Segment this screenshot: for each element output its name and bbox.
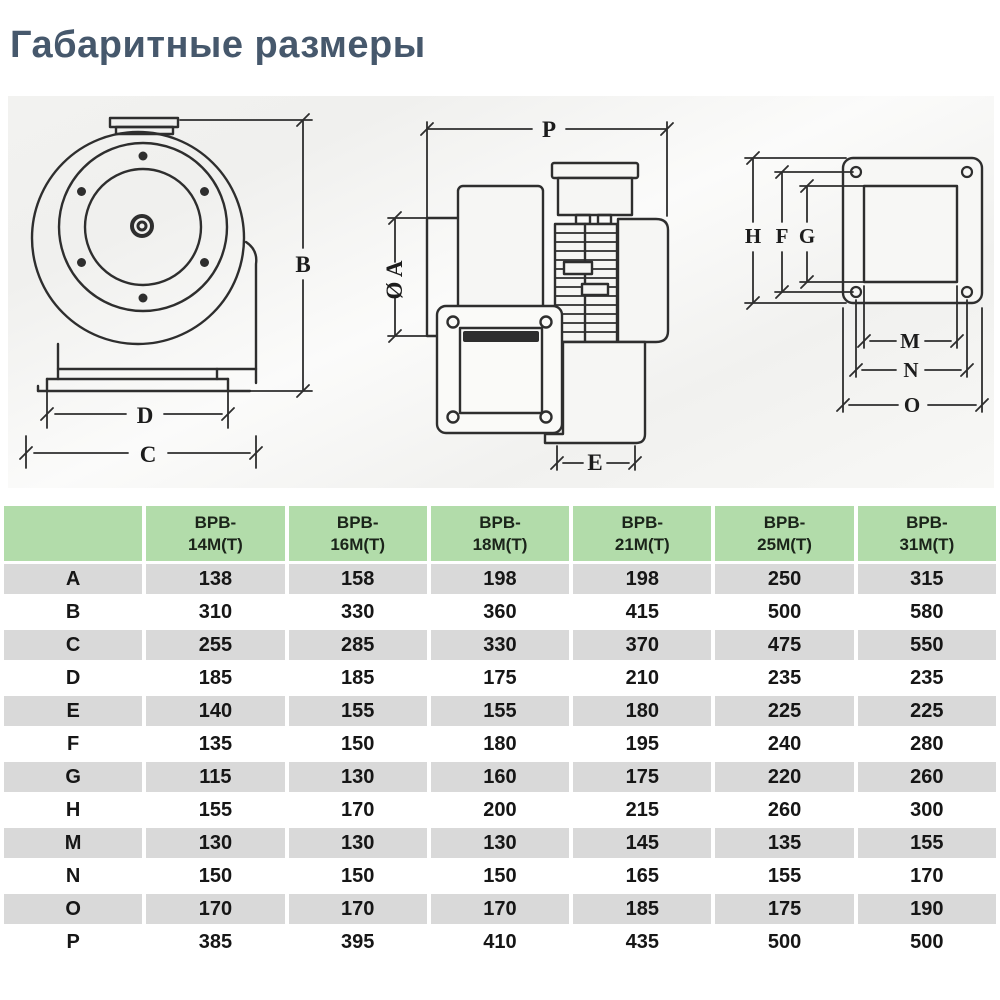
column-header-line2: 25M(T) — [715, 534, 853, 555]
outlet-slot — [463, 331, 539, 342]
dim-label-m: M — [900, 329, 920, 353]
dim-label-e: E — [587, 450, 602, 475]
dimension-value: 135 — [715, 828, 853, 858]
dimension-value: 130 — [289, 762, 427, 792]
row-label: E — [4, 696, 142, 726]
row-label: M — [4, 828, 142, 858]
dimension-value: 170 — [431, 894, 569, 924]
column-header-line1: BPB- — [858, 512, 996, 533]
fan-side-outline — [427, 163, 668, 443]
table-row-D: D185185175210235235 — [4, 663, 996, 693]
dimension-value: 195 — [573, 729, 711, 759]
dimension-value: 200 — [431, 795, 569, 825]
dim-label-d: D — [137, 403, 154, 428]
dimension-value: 185 — [289, 663, 427, 693]
dimension-value: 150 — [289, 729, 427, 759]
dimension-value: 310 — [146, 597, 284, 627]
dimension-value: 158 — [289, 564, 427, 594]
dimensions-table: BPB-14M(T)BPB-16M(T)BPB-18M(T)BPB-21M(T)… — [0, 503, 1000, 960]
flange-mounting-drawing: H F G M N O — [700, 110, 1000, 465]
row-label: H — [4, 795, 142, 825]
dimension-value: 500 — [858, 927, 996, 957]
column-header-line2: 21M(T) — [573, 534, 711, 555]
row-label: P — [4, 927, 142, 957]
table-row-H: H155170200215260300 — [4, 795, 996, 825]
table-row-B: B310330360415500580 — [4, 597, 996, 627]
dimension-value: 155 — [431, 696, 569, 726]
dimension-value: 235 — [715, 663, 853, 693]
hub-center — [138, 222, 146, 230]
motor-terminal-box — [552, 163, 638, 224]
dimension-value: 215 — [573, 795, 711, 825]
dimension-value: 260 — [715, 795, 853, 825]
dimension-value: 250 — [715, 564, 853, 594]
dim-label-g: G — [799, 224, 815, 248]
row-label: F — [4, 729, 142, 759]
dimension-value: 180 — [573, 696, 711, 726]
page-title: Габаритные размеры — [10, 24, 426, 67]
dimension-value: 500 — [715, 927, 853, 957]
dimension-value: 220 — [715, 762, 853, 792]
row-label: D — [4, 663, 142, 693]
column-header-line1: BPB- — [289, 512, 427, 533]
fan-front-view-drawing: B D C — [10, 96, 340, 486]
dimension-value: 150 — [431, 861, 569, 891]
dimension-value: 225 — [715, 696, 853, 726]
dimension-value: 180 — [431, 729, 569, 759]
dimension-value: 175 — [573, 762, 711, 792]
column-header-14M(T): BPB-14M(T) — [146, 506, 284, 561]
dimension-value: 115 — [146, 762, 284, 792]
table-corner-cell — [4, 506, 142, 561]
dimension-value: 330 — [289, 597, 427, 627]
dimension-value: 198 — [573, 564, 711, 594]
fan-side-view-drawing: P Ø A E — [370, 96, 700, 486]
dimension-value: 285 — [289, 630, 427, 660]
base-pedestal — [38, 344, 256, 391]
outlet-flange-top — [110, 118, 178, 127]
dimension-value: 140 — [146, 696, 284, 726]
dimension-value: 155 — [146, 795, 284, 825]
dimension-value: 135 — [146, 729, 284, 759]
dimension-value: 395 — [289, 927, 427, 957]
dimension-value: 360 — [431, 597, 569, 627]
dim-label-b: B — [295, 252, 310, 277]
drawings-panel: B D C — [8, 96, 994, 488]
row-label: A — [4, 564, 142, 594]
column-header-line1: BPB- — [715, 512, 853, 533]
dimension-value: 155 — [289, 696, 427, 726]
dimension-value: 130 — [431, 828, 569, 858]
dim-label-h: H — [745, 224, 761, 248]
row-label: C — [4, 630, 142, 660]
dimension-value: 300 — [858, 795, 996, 825]
dimension-value: 130 — [146, 828, 284, 858]
dimension-value: 255 — [146, 630, 284, 660]
dimension-value: 500 — [715, 597, 853, 627]
table-row-F: F135150180195240280 — [4, 729, 996, 759]
table-row-N: N150150150165155170 — [4, 861, 996, 891]
column-header-line2: 18M(T) — [431, 534, 569, 555]
dimension-value: 240 — [715, 729, 853, 759]
datasheet-page: Габаритные размеры — [0, 0, 1000, 1000]
dimension-value: 198 — [431, 564, 569, 594]
dimension-value: 315 — [858, 564, 996, 594]
dimension-value: 330 — [431, 630, 569, 660]
column-header-31M(T): BPB-31M(T) — [858, 506, 996, 561]
column-header-line1: BPB- — [146, 512, 284, 533]
outlet-flange-front — [437, 306, 562, 433]
column-header-line2: 31M(T) — [858, 534, 996, 555]
dimension-value: 185 — [573, 894, 711, 924]
dimension-value: 150 — [146, 861, 284, 891]
dim-label-p: P — [542, 117, 556, 142]
table-row-C: C255285330370475550 — [4, 630, 996, 660]
column-header-18M(T): BPB-18M(T) — [431, 506, 569, 561]
fan-front-outline — [32, 118, 256, 391]
dimension-value: 130 — [289, 828, 427, 858]
dimension-value: 170 — [289, 795, 427, 825]
table-row-G: G115130160175220260 — [4, 762, 996, 792]
dimension-value: 415 — [573, 597, 711, 627]
column-header-21M(T): BPB-21M(T) — [573, 506, 711, 561]
scroll-casing-circle — [32, 132, 244, 344]
dimension-value: 370 — [573, 630, 711, 660]
dimension-value: 235 — [858, 663, 996, 693]
dimension-value: 190 — [858, 894, 996, 924]
dimension-value: 175 — [431, 663, 569, 693]
table-row-M: M130130130145135155 — [4, 828, 996, 858]
dimension-value: 280 — [858, 729, 996, 759]
flange-bolt-holes — [77, 152, 209, 303]
dimension-value: 165 — [573, 861, 711, 891]
dimension-value: 145 — [573, 828, 711, 858]
row-label: B — [4, 597, 142, 627]
column-header-line1: BPB- — [431, 512, 569, 533]
motor-body — [555, 224, 617, 342]
dimension-value: 210 — [573, 663, 711, 693]
front-view-dim-lines — [20, 114, 312, 468]
dimension-value: 175 — [715, 894, 853, 924]
dimension-value: 185 — [146, 663, 284, 693]
dim-label-o: O — [904, 393, 920, 417]
dimension-value: 160 — [431, 762, 569, 792]
column-header-25M(T): BPB-25M(T) — [715, 506, 853, 561]
dimension-value: 260 — [858, 762, 996, 792]
dimension-value: 170 — [858, 861, 996, 891]
volute-outlet-edge — [246, 242, 256, 383]
hub-ring — [132, 216, 152, 236]
dimension-value: 155 — [715, 861, 853, 891]
table-header-row: BPB-14M(T)BPB-16M(T)BPB-18M(T)BPB-21M(T)… — [4, 506, 996, 561]
dimension-value: 155 — [858, 828, 996, 858]
table-row-E: E140155155180225225 — [4, 696, 996, 726]
motor-rear-housing — [618, 219, 668, 342]
table-row-O: O170170170185175190 — [4, 894, 996, 924]
column-header-16M(T): BPB-16M(T) — [289, 506, 427, 561]
dim-label-n: N — [903, 358, 918, 382]
column-header-line1: BPB- — [573, 512, 711, 533]
dimension-value: 150 — [289, 861, 427, 891]
dim-label-c: C — [140, 442, 157, 467]
dimension-value: 550 — [858, 630, 996, 660]
dimension-value: 435 — [573, 927, 711, 957]
dimension-value: 580 — [858, 597, 996, 627]
dimension-value: 170 — [146, 894, 284, 924]
flange-opening — [864, 186, 957, 282]
dim-label-diameter-a: Ø A — [382, 260, 407, 299]
row-label: G — [4, 762, 142, 792]
dimension-value: 170 — [289, 894, 427, 924]
dimension-value: 138 — [146, 564, 284, 594]
dimension-value: 385 — [146, 927, 284, 957]
dimension-value: 410 — [431, 927, 569, 957]
row-label: N — [4, 861, 142, 891]
column-header-line2: 16M(T) — [289, 534, 427, 555]
column-header-line2: 14M(T) — [146, 534, 284, 555]
row-label: O — [4, 894, 142, 924]
dimension-value: 225 — [858, 696, 996, 726]
inlet-opening-circle — [85, 169, 201, 285]
dimension-value: 475 — [715, 630, 853, 660]
table-row-P: P385395410435500500 — [4, 927, 996, 957]
dim-label-f: F — [776, 224, 789, 248]
table-row-A: A138158198198250315 — [4, 564, 996, 594]
